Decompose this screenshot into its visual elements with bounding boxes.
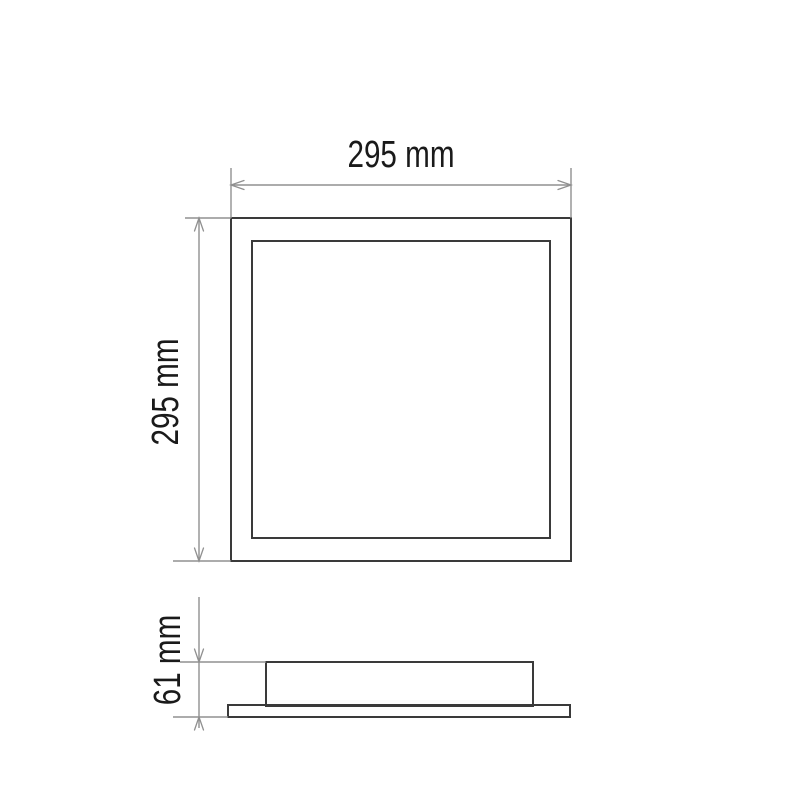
dimension-lines [173, 168, 571, 730]
front-view-outer-frame [231, 218, 571, 561]
side-view-body [266, 662, 533, 706]
diagram-canvas: 295 mm 295 mm 61 mm [0, 0, 800, 800]
object-lines [228, 218, 571, 717]
dimension-drawing [0, 0, 800, 800]
width-dimension-label: 295 mm [347, 136, 454, 174]
depth-dimension-label: 61 mm [149, 615, 187, 706]
height-dimension-label: 295 mm [147, 338, 185, 445]
front-view-inner-panel [252, 241, 550, 538]
